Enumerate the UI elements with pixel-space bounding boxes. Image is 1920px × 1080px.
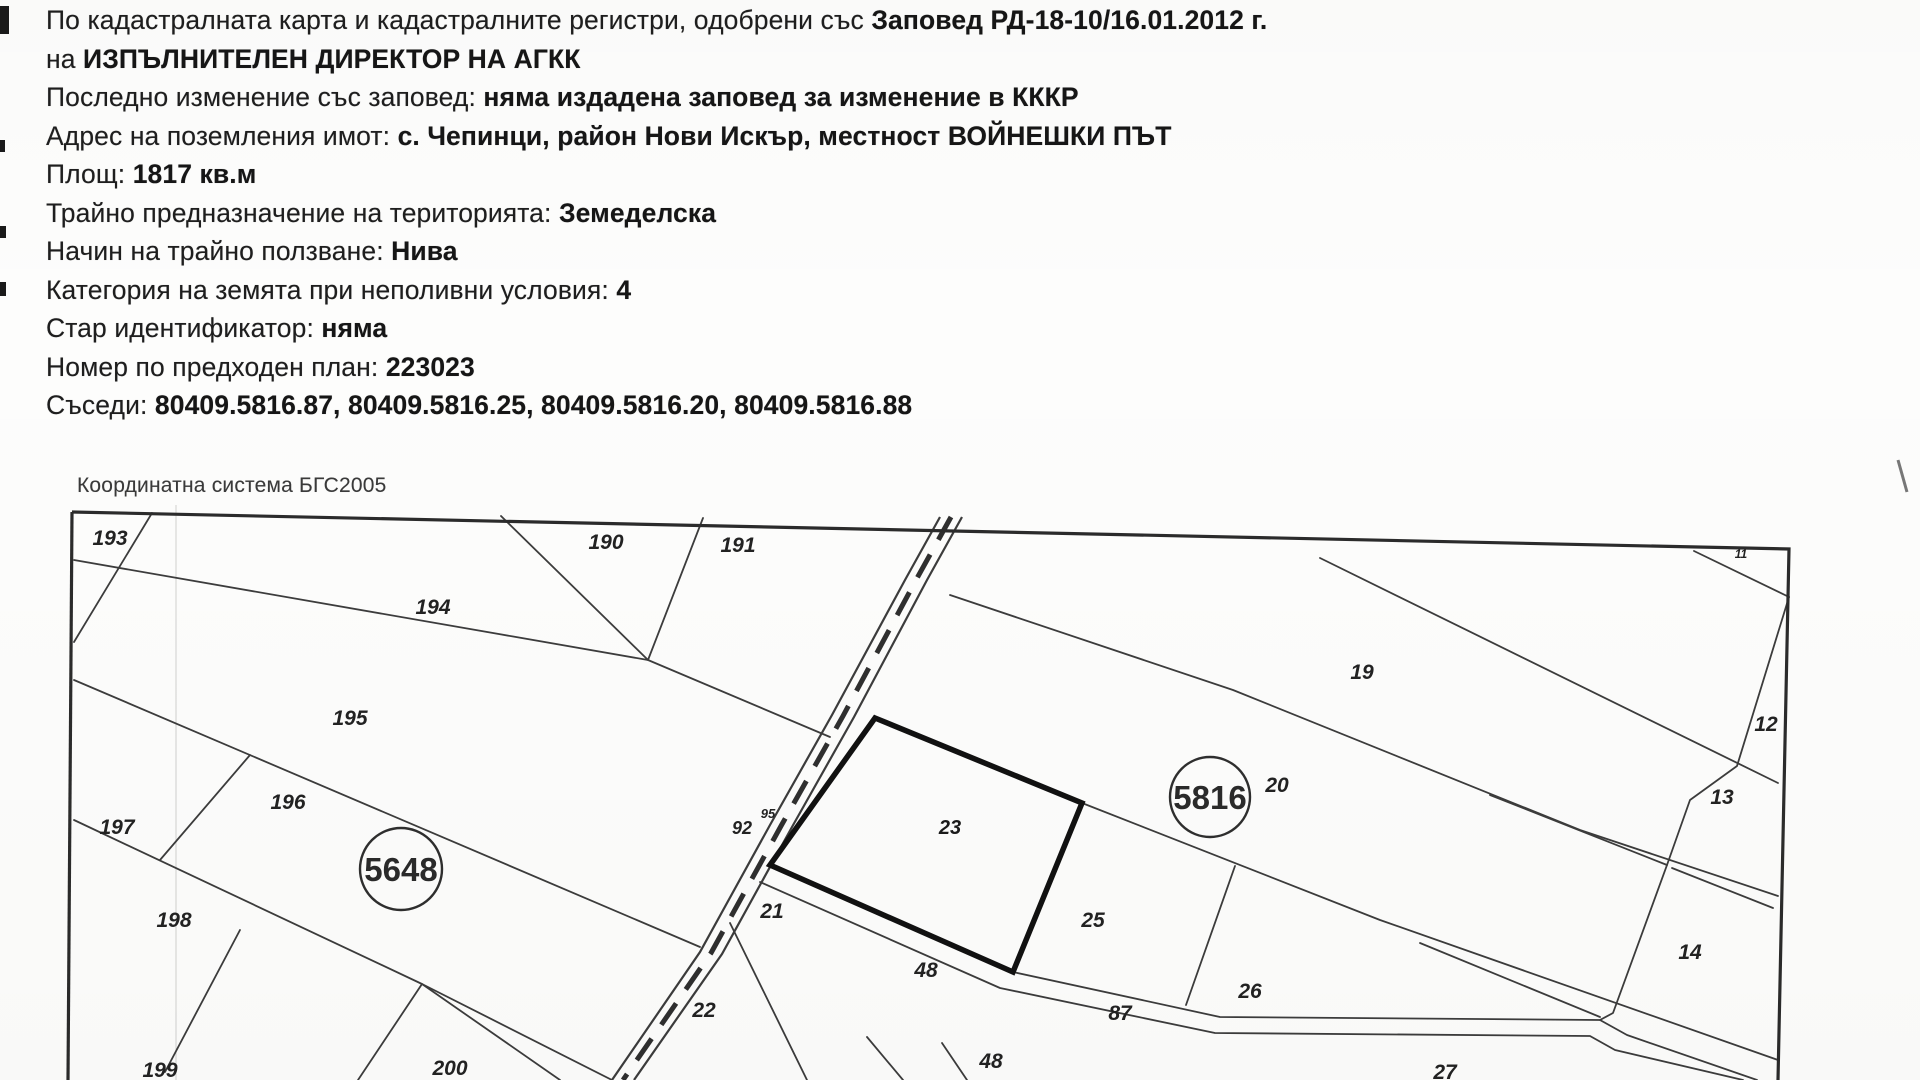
parcel-number-label: 198 — [156, 909, 191, 932]
parcel-number-label: 194 — [415, 596, 450, 619]
parcel-number-label: 48 — [978, 1050, 1003, 1073]
parcel-number-label: 199 — [142, 1059, 177, 1080]
parcel-boundary-line — [358, 984, 422, 1080]
parcel-number-label: 197 — [99, 816, 135, 839]
parcel-number-label: 27 — [1432, 1061, 1458, 1080]
parcel-boundary-line — [950, 595, 1778, 896]
parcel-number-label: 25 — [1080, 909, 1105, 932]
scan-artifact — [0, 6, 9, 34]
parcel-boundary-line — [74, 560, 830, 737]
map-border — [68, 512, 72, 1080]
cadastral-map: 5648581619319419019119111213195196197198… — [0, 0, 1920, 1080]
parcel-boundary-line — [74, 820, 560, 1080]
parcel-boundary-line — [1672, 868, 1773, 908]
parcel-boundary-line — [1420, 943, 1600, 1017]
road-centerline-dashes — [623, 517, 951, 1080]
parcel-boundary-line — [1013, 972, 1757, 1080]
scan-artifact — [0, 140, 5, 152]
parcel-boundary-line — [1490, 795, 1667, 865]
parcel-boundary-line — [648, 518, 703, 660]
scanned-cadastral-document: { "document": { "header_lines": [ {"pref… — [0, 0, 1920, 1080]
parcel-number-label: 19 — [1350, 661, 1374, 684]
parcel-number-label: 190 — [588, 531, 623, 554]
parcel-boundary-line — [730, 923, 807, 1080]
parcel-number-label: 200 — [431, 1057, 467, 1080]
map-border — [72, 512, 1789, 1080]
parcel-boundary-line — [1082, 803, 1778, 1060]
parcel-boundary-line — [1320, 558, 1778, 783]
parcel-number-label: 11 — [1735, 547, 1748, 561]
focus-parcel-outline — [770, 718, 1082, 972]
scan-artifact — [0, 282, 6, 296]
road-edge-line — [612, 517, 940, 1080]
parcel-boundary-line — [942, 1043, 967, 1080]
parcel-number-label: 48 — [913, 959, 938, 982]
parcel-number-label: 92 — [732, 818, 752, 838]
scan-smudge — [1898, 460, 1907, 492]
scan-artifact — [0, 226, 6, 238]
parcel-number-label: 95 — [761, 806, 776, 821]
parcel-number-label: 193 — [92, 527, 127, 550]
parcel-number-label: 13 — [1710, 786, 1734, 809]
parcel-number-label: 87 — [1108, 1002, 1133, 1025]
parcel-number-label: 21 — [759, 900, 783, 923]
parcel-number-label: 26 — [1237, 980, 1262, 1003]
region-circle-label: 5816 — [1173, 779, 1246, 816]
parcel-number-label: 191 — [720, 534, 755, 557]
parcel-boundary-line — [867, 1037, 903, 1080]
parcel-boundary-line — [160, 755, 250, 860]
parcel-number-label: 20 — [1264, 774, 1289, 797]
parcel-number-label: 196 — [270, 791, 305, 814]
parcel-boundary-line — [1186, 866, 1235, 1005]
region-circle-label: 5648 — [364, 851, 437, 888]
parcel-number-label: 12 — [1754, 713, 1778, 736]
parcel-number-label: 14 — [1678, 941, 1702, 964]
parcel-number-label: 22 — [691, 999, 716, 1022]
parcel-number-label: 195 — [332, 707, 367, 730]
focus-parcel-label: 23 — [938, 817, 961, 839]
